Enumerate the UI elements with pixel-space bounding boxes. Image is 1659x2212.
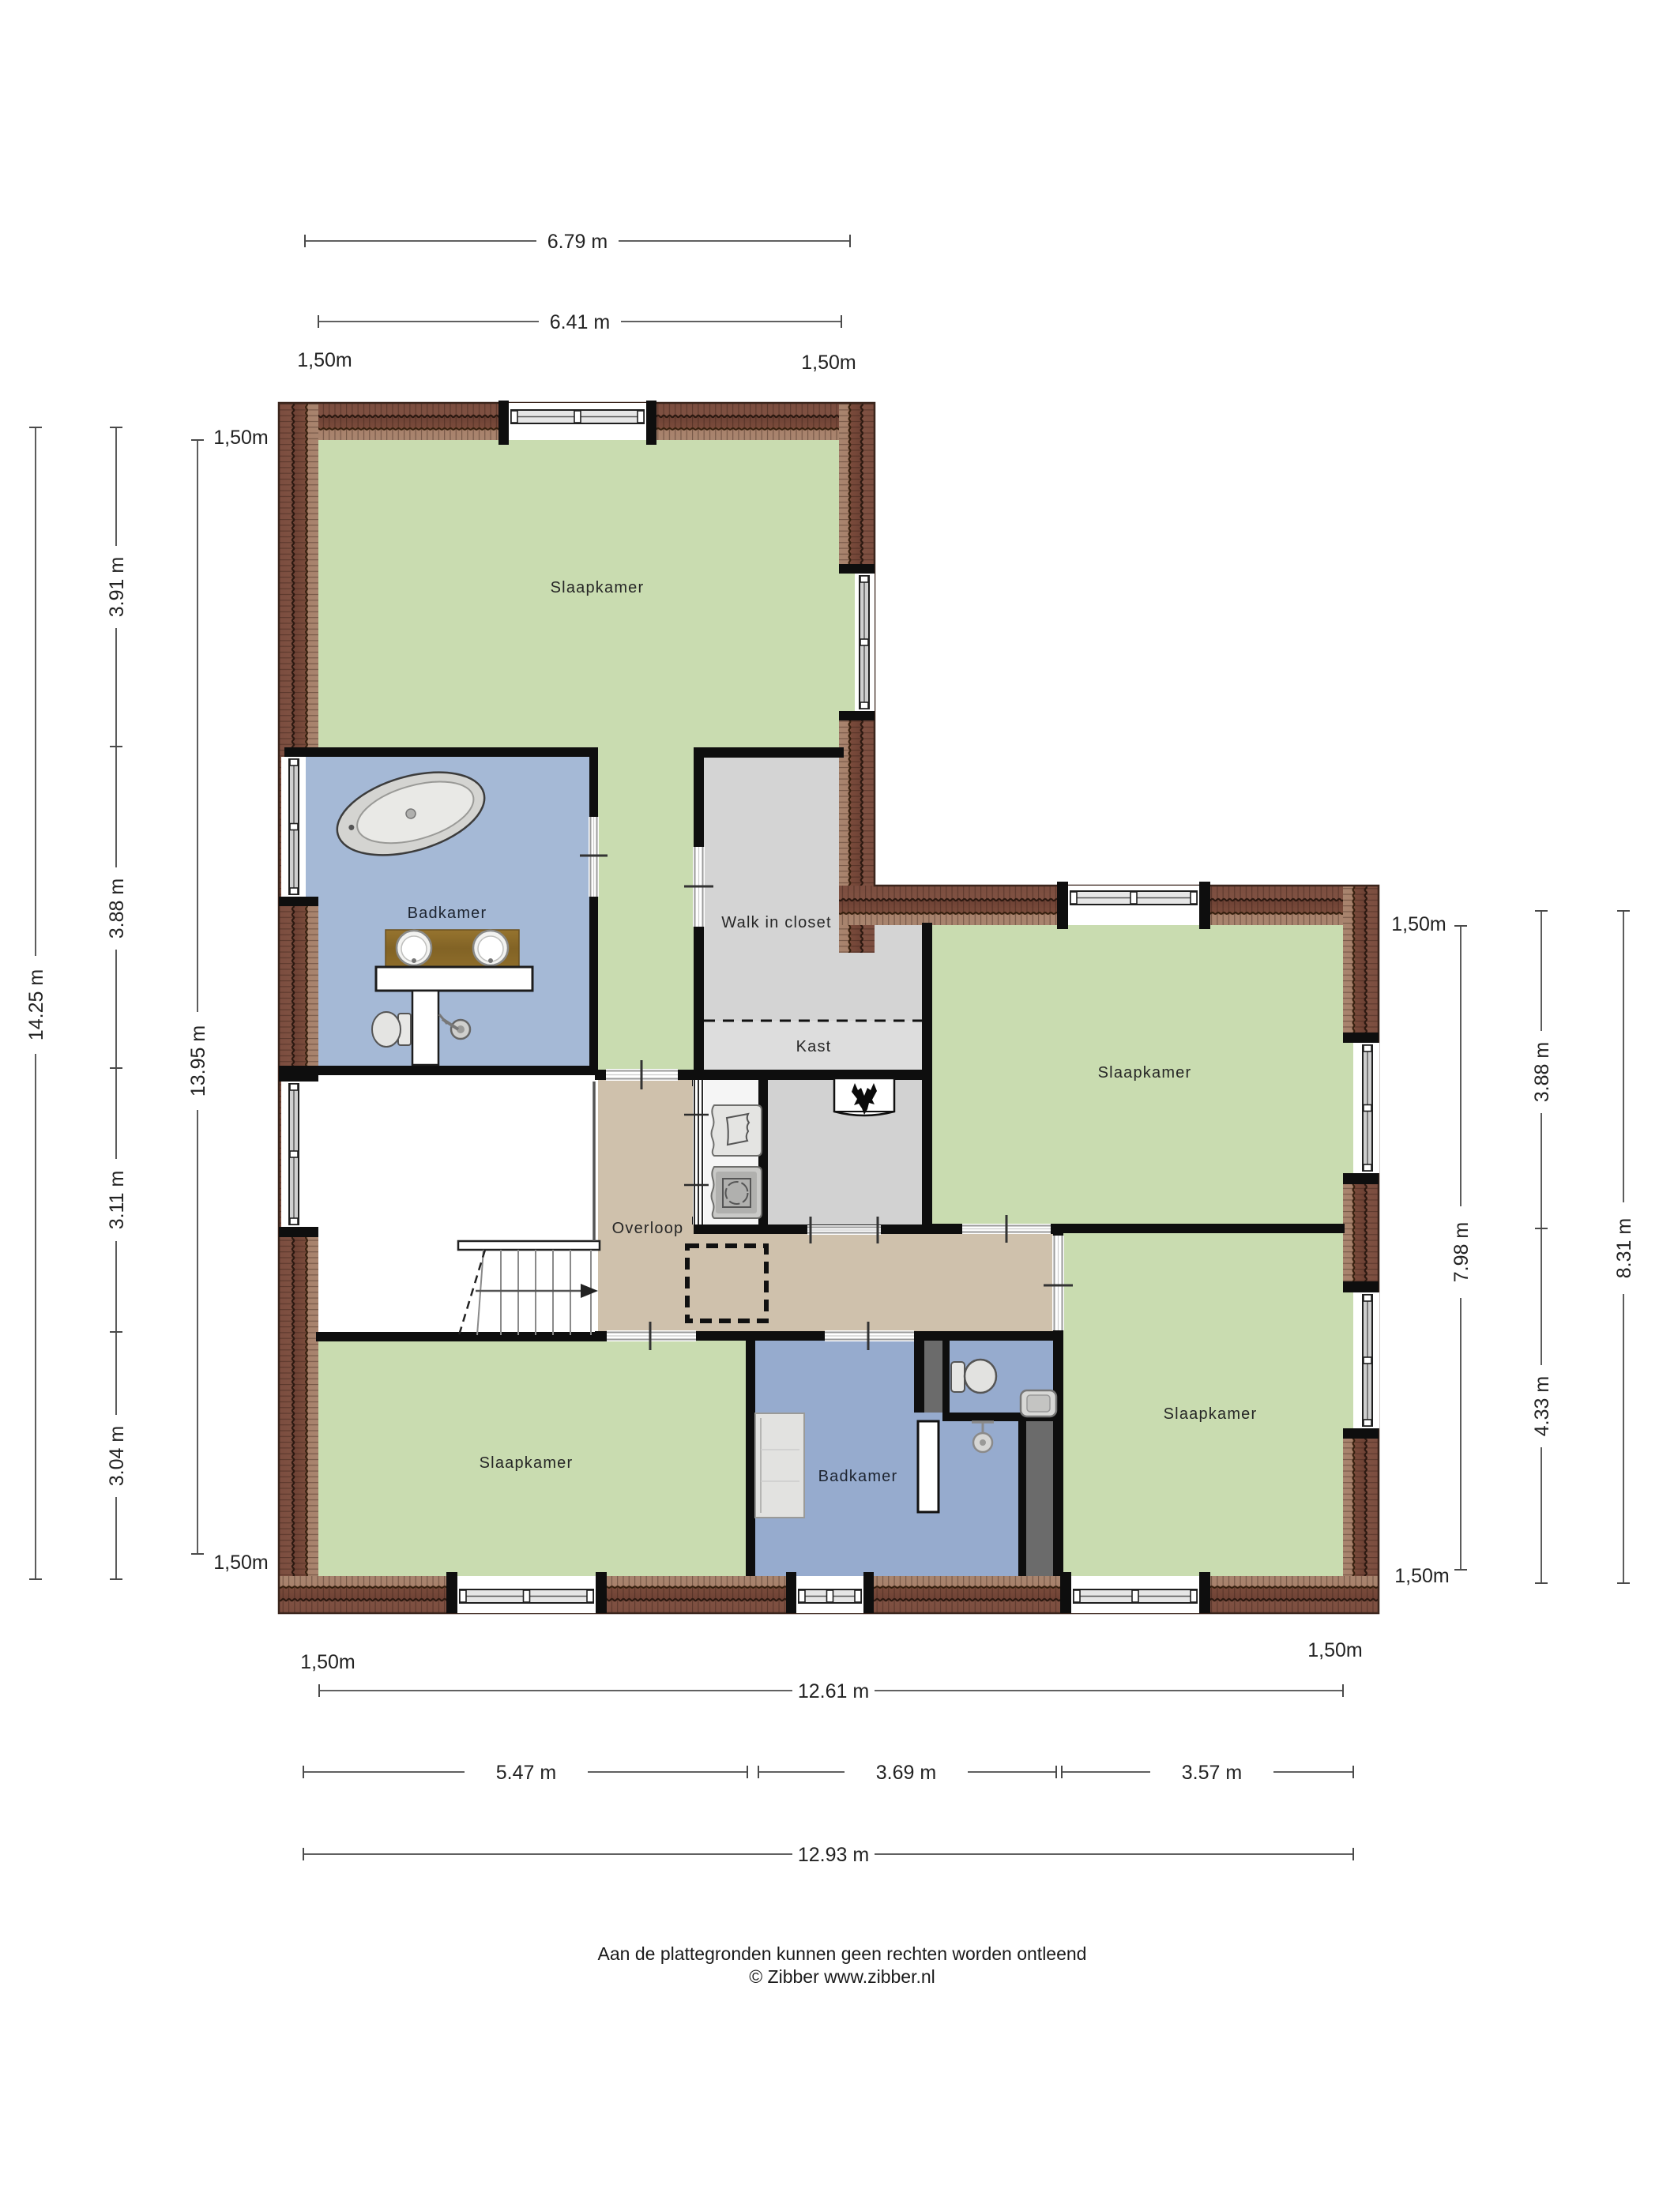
- svg-text:12.61 m: 12.61 m: [798, 1680, 869, 1702]
- svg-text:6.41 m: 6.41 m: [550, 311, 610, 333]
- svg-text:3.69 m: 3.69 m: [876, 1762, 936, 1784]
- svg-text:1,50m: 1,50m: [213, 427, 268, 449]
- svg-text:6.79 m: 6.79 m: [547, 231, 608, 253]
- svg-text:3.04 m: 3.04 m: [106, 1426, 128, 1486]
- svg-text:Kast: Kast: [796, 1038, 832, 1055]
- svg-text:1,50m: 1,50m: [801, 352, 856, 374]
- svg-text:Badkamer: Badkamer: [408, 905, 487, 922]
- svg-text:4.33 m: 4.33 m: [1531, 1376, 1553, 1436]
- svg-text:1,50m: 1,50m: [300, 1651, 355, 1673]
- svg-text:Aan de plattegronden kunnen ge: Aan de plattegronden kunnen geen rechten…: [598, 1943, 1087, 1964]
- svg-text:3.91 m: 3.91 m: [106, 557, 128, 617]
- svg-text:Slaapkamer: Slaapkamer: [480, 1454, 574, 1472]
- svg-text:3.11 m: 3.11 m: [106, 1171, 128, 1230]
- svg-text:Slaapkamer: Slaapkamer: [1164, 1405, 1258, 1423]
- svg-text:5.47 m: 5.47 m: [496, 1762, 556, 1784]
- svg-text:Slaapkamer: Slaapkamer: [1098, 1064, 1192, 1082]
- svg-text:1,50m: 1,50m: [297, 349, 352, 371]
- svg-text:3.57 m: 3.57 m: [1182, 1762, 1242, 1784]
- svg-text:7.98 m: 7.98 m: [1450, 1222, 1473, 1282]
- svg-text:Slaapkamer: Slaapkamer: [551, 579, 645, 596]
- svg-text:1,50m: 1,50m: [1391, 913, 1446, 935]
- svg-text:1,50m: 1,50m: [1307, 1639, 1362, 1661]
- svg-text:1,50m: 1,50m: [1394, 1565, 1449, 1587]
- svg-text:3.88 m: 3.88 m: [1531, 1042, 1553, 1102]
- svg-text:13.95 m: 13.95 m: [187, 1025, 209, 1097]
- svg-text:Badkamer: Badkamer: [818, 1468, 898, 1485]
- svg-text:8.31 m: 8.31 m: [1613, 1218, 1635, 1278]
- svg-text:1,50m: 1,50m: [213, 1552, 268, 1574]
- svg-text:12.93 m: 12.93 m: [798, 1844, 869, 1866]
- svg-text:3.88 m: 3.88 m: [106, 878, 128, 939]
- svg-text:Walk in closet: Walk in closet: [721, 914, 831, 931]
- svg-text:Overloop: Overloop: [612, 1220, 684, 1237]
- svg-text:© Zibber www.zibber.nl: © Zibber www.zibber.nl: [749, 1966, 935, 1987]
- svg-text:14.25 m: 14.25 m: [25, 969, 47, 1040]
